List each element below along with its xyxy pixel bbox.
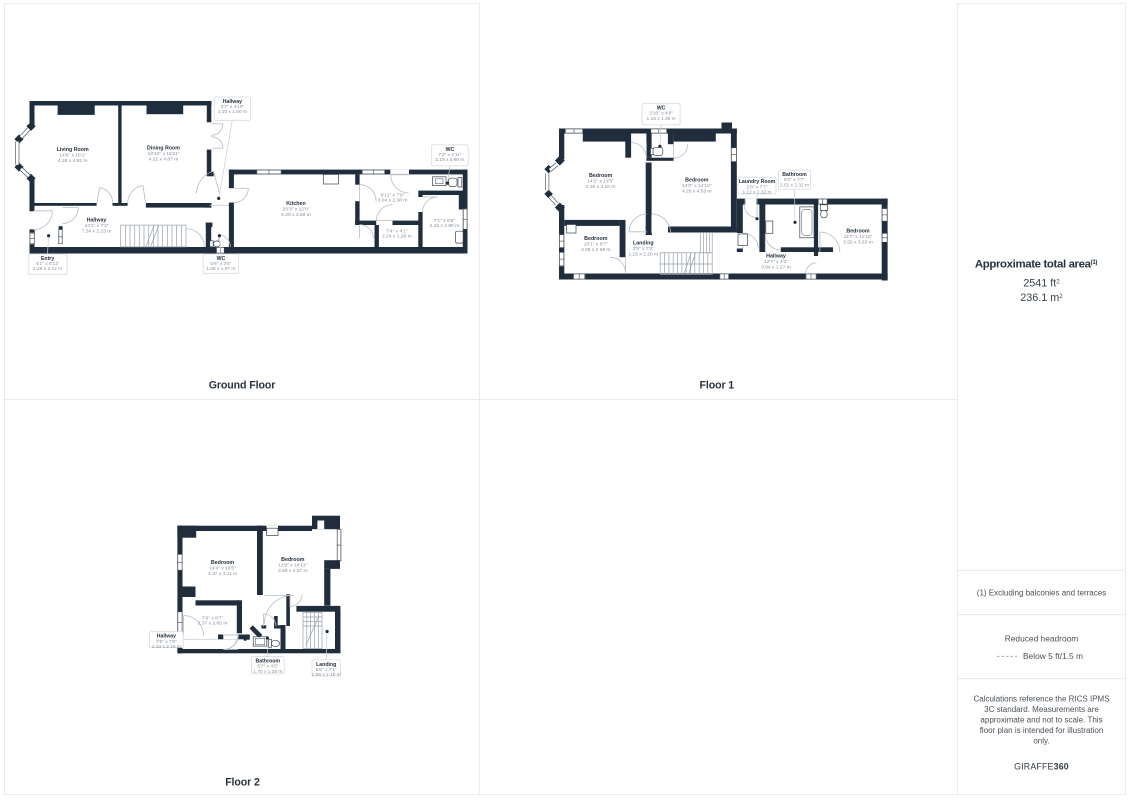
svg-text:14′4″ x 13′5″: 14′4″ x 13′5″ xyxy=(209,566,236,572)
svg-text:3.04 x 2.38 m: 3.04 x 2.38 m xyxy=(378,198,408,204)
svg-text:5′6″ x 3′6″: 5′6″ x 3′6″ xyxy=(210,261,231,267)
svg-text:236.1 m2: 236.1 m2 xyxy=(1020,292,1063,304)
svg-text:4′1″ x 6′11″: 4′1″ x 6′11″ xyxy=(36,261,60,267)
svg-text:Approximate total area(1): Approximate total area(1) xyxy=(975,259,1098,271)
svg-text:Bedroom: Bedroom xyxy=(584,236,608,242)
svg-text:Floor 1: Floor 1 xyxy=(699,380,734,392)
svg-text:3.84 x 1.27 m: 3.84 x 1.27 m xyxy=(761,265,791,271)
svg-text:1.10 x 1.50 m: 1.10 x 1.50 m xyxy=(218,109,247,115)
svg-text:4.28 x 4.53 m: 4.28 x 4.53 m xyxy=(682,189,712,195)
svg-text:Bedroom: Bedroom xyxy=(685,178,709,184)
svg-text:2.19 x 0.90 m: 2.19 x 0.90 m xyxy=(435,157,464,163)
svg-text:24′1″ x 7′2″: 24′1″ x 7′2″ xyxy=(84,223,108,229)
svg-text:10′1″ x 8′7″: 10′1″ x 8′7″ xyxy=(584,242,608,248)
svg-text:Dining Room: Dining Room xyxy=(147,146,180,152)
svg-text:2.16 x 2.80 m: 2.16 x 2.80 m xyxy=(430,223,460,229)
svg-text:only.: only. xyxy=(1033,737,1049,746)
svg-text:7′2″ x 2′11″: 7′2″ x 2′11″ xyxy=(438,152,462,158)
svg-text:20′3″ x 12′0″: 20′3″ x 12′0″ xyxy=(283,207,310,213)
svg-text:2.34 x 2.16 m: 2.34 x 2.16 m xyxy=(152,644,181,650)
svg-text:Ground Floor: Ground Floor xyxy=(209,380,275,392)
svg-text:1.15 x 2.20 m: 1.15 x 2.20 m xyxy=(628,252,658,258)
svg-text:Hallway: Hallway xyxy=(766,254,786,260)
svg-text:14′6″ x 16′1″: 14′6″ x 16′1″ xyxy=(59,152,86,158)
svg-text:14′1″ x 13′5″: 14′1″ x 13′5″ xyxy=(587,179,614,185)
svg-text:4.22 x 4.87 m: 4.22 x 4.87 m xyxy=(149,157,179,163)
svg-text:7′4″ x 4′1″: 7′4″ x 4′1″ xyxy=(386,228,408,234)
svg-text:1.26 x 2.12 m: 1.26 x 2.12 m xyxy=(33,266,62,272)
svg-text:Bathroom: Bathroom xyxy=(256,659,281,665)
svg-text:3.59 x 4.57 m: 3.59 x 4.57 m xyxy=(278,568,308,574)
svg-text:Bedroom: Bedroom xyxy=(281,557,305,563)
svg-text:Hallway: Hallway xyxy=(223,99,242,105)
svg-text:5′6″ x 7′1″: 5′6″ x 7′1″ xyxy=(316,667,337,673)
svg-text:3.55 x 3.63 m: 3.55 x 3.63 m xyxy=(843,240,873,246)
svg-text:floor plan is intended for ill: floor plan is intended for illustration xyxy=(980,726,1104,735)
svg-text:3′7″ x 4′10″: 3′7″ x 4′10″ xyxy=(221,104,245,110)
svg-text:1.08 x 1.07 m: 1.08 x 1.07 m xyxy=(206,266,235,272)
svg-text:Hallway: Hallway xyxy=(87,218,107,224)
svg-text:Living Room: Living Room xyxy=(57,147,89,153)
svg-text:Landing: Landing xyxy=(316,662,336,668)
svg-text:11′7″ x 11′10″: 11′7″ x 11′10″ xyxy=(844,234,873,240)
svg-text:1.12 x 2.32 m: 1.12 x 2.32 m xyxy=(742,189,771,195)
svg-text:2.24 x 1.26 m: 2.24 x 1.26 m xyxy=(382,234,412,240)
svg-text:2′8″ x 7′7″: 2′8″ x 7′7″ xyxy=(747,184,768,190)
svg-text:Reduced headroom: Reduced headroom xyxy=(1005,634,1079,644)
svg-text:Floor 2: Floor 2 xyxy=(225,777,260,789)
svg-text:11′9″ x 14′11″: 11′9″ x 14′11″ xyxy=(278,563,307,569)
svg-text:WC: WC xyxy=(657,106,666,112)
svg-text:WC: WC xyxy=(446,147,455,153)
svg-text:6.20 x 3.68 m: 6.20 x 3.68 m xyxy=(281,212,311,218)
svg-text:Bedroom: Bedroom xyxy=(589,173,613,179)
svg-text:3C standard. Measurements are: 3C standard. Measurements are xyxy=(984,705,1099,714)
svg-text:7′9″ x 8′7″: 7′9″ x 8′7″ xyxy=(202,616,224,622)
svg-text:4.28 x 4.91 m: 4.28 x 4.91 m xyxy=(58,158,88,164)
svg-text:Landing: Landing xyxy=(633,241,654,247)
svg-text:13′10″ x 15′11″: 13′10″ x 15′11″ xyxy=(148,151,180,157)
svg-text:1.18 x 1.39 m: 1.18 x 1.39 m xyxy=(647,116,676,122)
svg-text:Laundry Room: Laundry Room xyxy=(739,179,776,185)
svg-text:approximate and not to scale.: approximate and not to scale. This xyxy=(980,716,1102,725)
svg-text:14′0″ x 14′10″: 14′0″ x 14′10″ xyxy=(682,183,712,189)
svg-text:Bathroom: Bathroom xyxy=(782,172,807,178)
svg-text:1.70 x 1.28 m: 1.70 x 1.28 m xyxy=(253,669,282,675)
svg-text:4.37 x 4.11 m: 4.37 x 4.11 m xyxy=(208,571,237,577)
svg-text:1.68 x 2.16 m: 1.68 x 2.16 m xyxy=(312,672,341,678)
svg-text:3′10″ x 4′6″: 3′10″ x 4′6″ xyxy=(649,111,673,117)
svg-text:4.30 x 4.10 m: 4.30 x 4.10 m xyxy=(586,184,616,190)
svg-text:12′7″ x 4′2″: 12′7″ x 4′2″ xyxy=(764,259,788,265)
svg-text:Bedroom: Bedroom xyxy=(846,229,870,235)
svg-text:Below 5 ft/1.5 m: Below 5 ft/1.5 m xyxy=(1023,651,1083,661)
svg-text:WC: WC xyxy=(217,256,226,262)
svg-text:2.37 x 2.65 m: 2.37 x 2.65 m xyxy=(198,621,228,627)
svg-text:3.08 x 2.65 m: 3.08 x 2.65 m xyxy=(581,247,611,253)
svg-text:2541 ft2: 2541 ft2 xyxy=(1023,278,1060,290)
svg-text:8′2″ x 7′7″: 8′2″ x 7′7″ xyxy=(784,177,805,183)
svg-text:7.34 x 2.23 m: 7.34 x 2.23 m xyxy=(82,229,112,235)
svg-text:9′11″ x 7′9″: 9′11″ x 7′9″ xyxy=(381,193,405,199)
svg-text:7′6″ x 7′0″: 7′6″ x 7′0″ xyxy=(156,639,177,645)
svg-text:Kitchen: Kitchen xyxy=(286,201,305,207)
svg-text:(1) Excluding balconies and te: (1) Excluding balconies and terraces xyxy=(977,589,1106,598)
svg-text:Entry: Entry xyxy=(41,256,54,262)
svg-text:Calculations reference the RIC: Calculations reference the RICS IPMS xyxy=(973,695,1109,704)
svg-text:2.52 x 2.32 m: 2.52 x 2.32 m xyxy=(780,182,809,188)
svg-text:7′1″ x 8′6″: 7′1″ x 8′6″ xyxy=(434,218,456,224)
svg-text:5′7″ x 4′2″: 5′7″ x 4′2″ xyxy=(257,664,278,670)
svg-text:Hallway: Hallway xyxy=(157,634,176,640)
svg-text:GIRAFFE360: GIRAFFE360 xyxy=(1014,762,1069,772)
svg-text:Bedroom: Bedroom xyxy=(211,560,235,566)
svg-text:3′9″ x 7′2″: 3′9″ x 7′2″ xyxy=(633,246,655,252)
